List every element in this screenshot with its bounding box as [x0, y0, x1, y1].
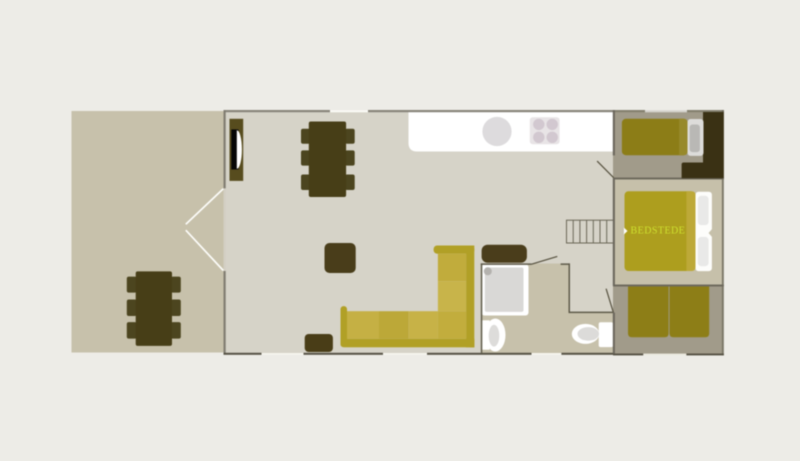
svg-text:BEDSTEDE: BEDSTEDE: [631, 225, 686, 236]
